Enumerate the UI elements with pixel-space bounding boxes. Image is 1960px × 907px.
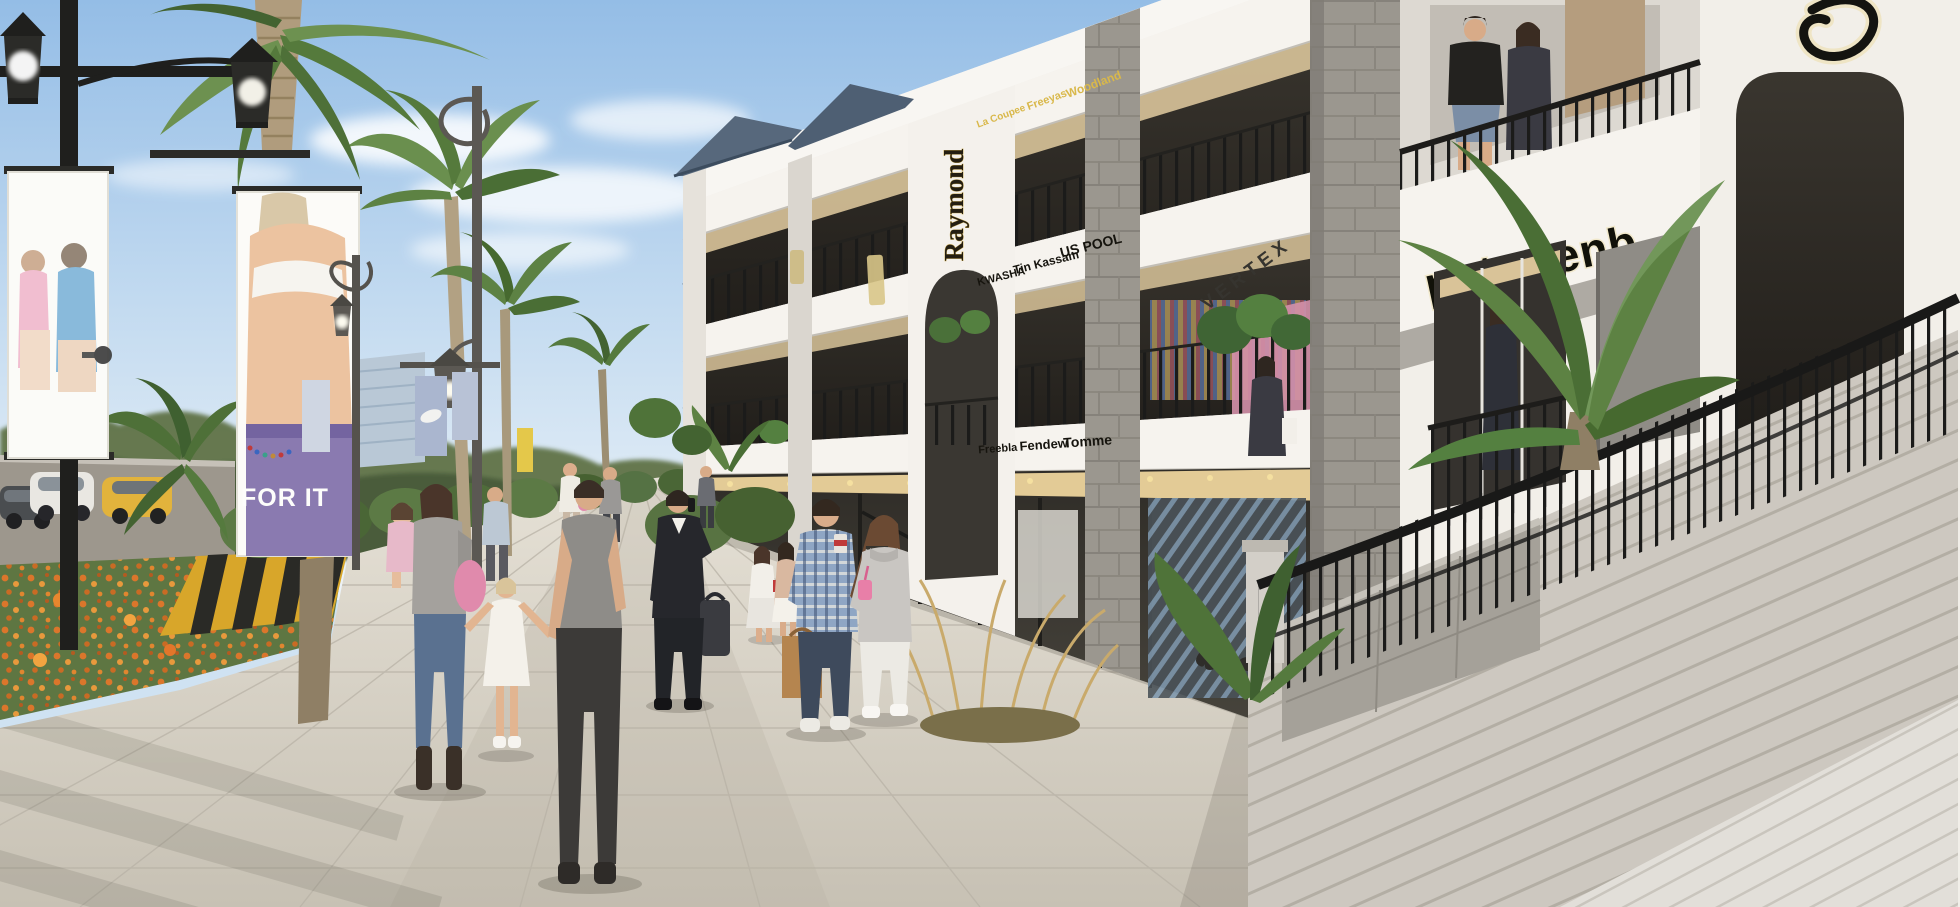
scene-canvas: VERTEX Raymond Woodland Freeyas La Coupe… (0, 0, 1960, 907)
pink-bag (454, 560, 486, 612)
distant-building (350, 352, 425, 468)
pilaster (683, 165, 706, 520)
small-sign (790, 250, 804, 284)
facade-sign-tomme: Tomme (1063, 431, 1113, 450)
small-vertical-sign (867, 255, 886, 306)
briefcase-bag (700, 600, 730, 656)
stone-column (1085, 8, 1140, 680)
raymond-column: Raymond (908, 85, 1015, 636)
banner-sneaker (415, 376, 447, 456)
shopping-bag (1282, 418, 1297, 444)
drink-cup (834, 534, 847, 553)
banner-small-blue (452, 372, 478, 440)
retail-street-rendering: VERTEX Raymond Woodland Freeyas La Coupe… (0, 0, 1960, 907)
banner-fitness-couple (8, 172, 112, 458)
raymond-sign: Raymond (939, 149, 969, 262)
banner-fitness-woman: FOR IT (237, 192, 359, 556)
banner-small-yellow (517, 428, 533, 472)
pilaster (788, 154, 812, 565)
shop-window-display (1018, 510, 1078, 618)
for-it-text: FOR IT (241, 484, 329, 512)
